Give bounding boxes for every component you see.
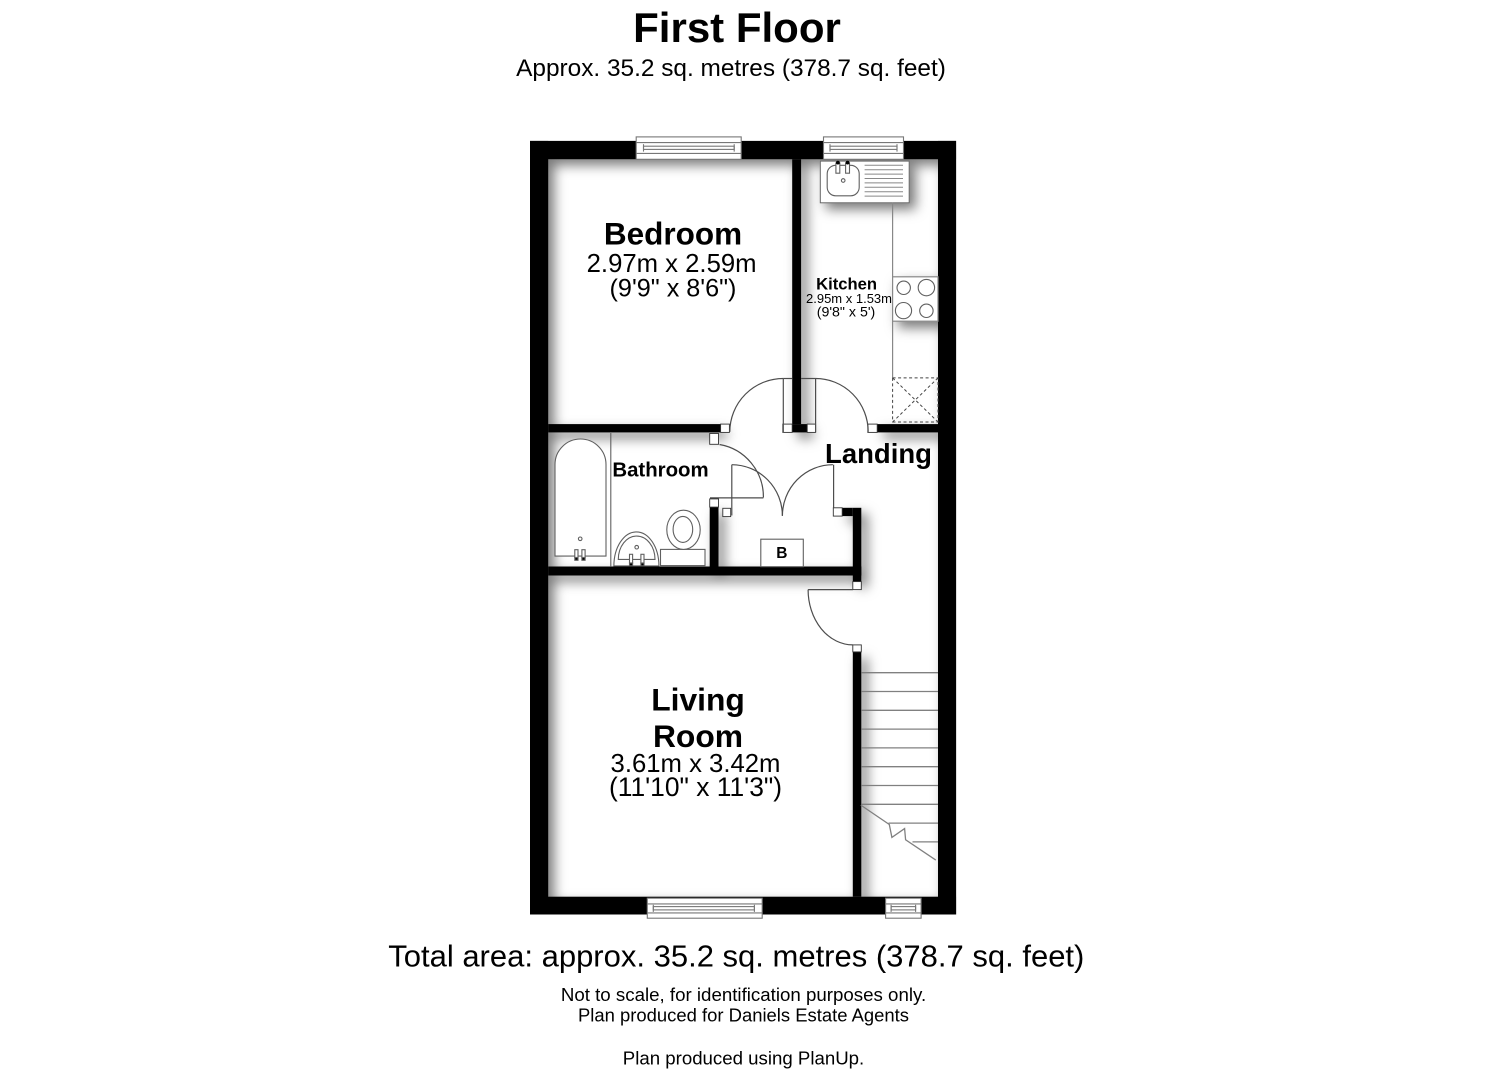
svg-text:Room: Room (653, 718, 743, 754)
svg-text:(9'9" x 8'6"): (9'9" x 8'6") (610, 274, 737, 302)
svg-text:B: B (776, 545, 787, 562)
svg-text:Total area: approx. 35.2 sq. m: Total area: approx. 35.2 sq. metres (378… (388, 938, 1084, 973)
svg-text:Plan produced for Daniels Esta: Plan produced for Daniels Estate Agents (578, 1005, 909, 1026)
svg-text:Landing: Landing (825, 438, 932, 469)
svg-text:Not to scale, for identificati: Not to scale, for identification purpose… (561, 984, 926, 1005)
svg-text:(9'8" x 5'): (9'8" x 5') (817, 305, 876, 321)
svg-text:Living: Living (651, 682, 745, 718)
svg-text:Bedroom: Bedroom (604, 215, 742, 251)
svg-text:(11'10" x 11'3"): (11'10" x 11'3") (609, 772, 782, 802)
svg-text:Bathroom: Bathroom (612, 460, 708, 482)
svg-text:First Floor: First Floor (633, 4, 841, 51)
svg-text:Plan produced using PlanUp.: Plan produced using PlanUp. (623, 1048, 864, 1069)
svg-text:Approx. 35.2 sq. metres (378.7: Approx. 35.2 sq. metres (378.7 sq. feet) (516, 55, 946, 82)
